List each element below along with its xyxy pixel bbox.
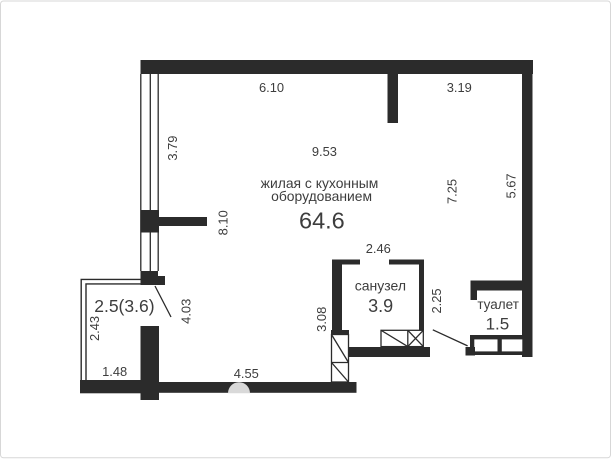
svg-text:9.53: 9.53 [312, 144, 337, 159]
svg-text:8.10: 8.10 [216, 210, 231, 235]
svg-text:4.03: 4.03 [179, 299, 194, 324]
svg-text:3.08: 3.08 [314, 307, 329, 332]
svg-text:2.5(3.6): 2.5(3.6) [94, 296, 154, 316]
svg-text:6.10: 6.10 [259, 80, 284, 95]
svg-text:5.67: 5.67 [503, 173, 518, 198]
svg-text:4.55: 4.55 [234, 366, 259, 381]
svg-text:2.46: 2.46 [366, 241, 391, 256]
svg-text:санузел: санузел [355, 278, 406, 294]
svg-text:3.9: 3.9 [368, 296, 393, 316]
svg-text:2.25: 2.25 [429, 288, 444, 313]
svg-text:2.43: 2.43 [87, 316, 102, 341]
svg-text:3.79: 3.79 [165, 136, 180, 161]
svg-text:3.19: 3.19 [447, 80, 472, 95]
svg-text:туалет: туалет [477, 297, 519, 312]
svg-text:7.25: 7.25 [444, 179, 459, 204]
svg-text:1.5: 1.5 [486, 315, 510, 334]
svg-text:64.6: 64.6 [299, 208, 345, 234]
svg-text:1.48: 1.48 [102, 364, 127, 379]
svg-text:оборудованием: оборудованием [271, 188, 372, 204]
